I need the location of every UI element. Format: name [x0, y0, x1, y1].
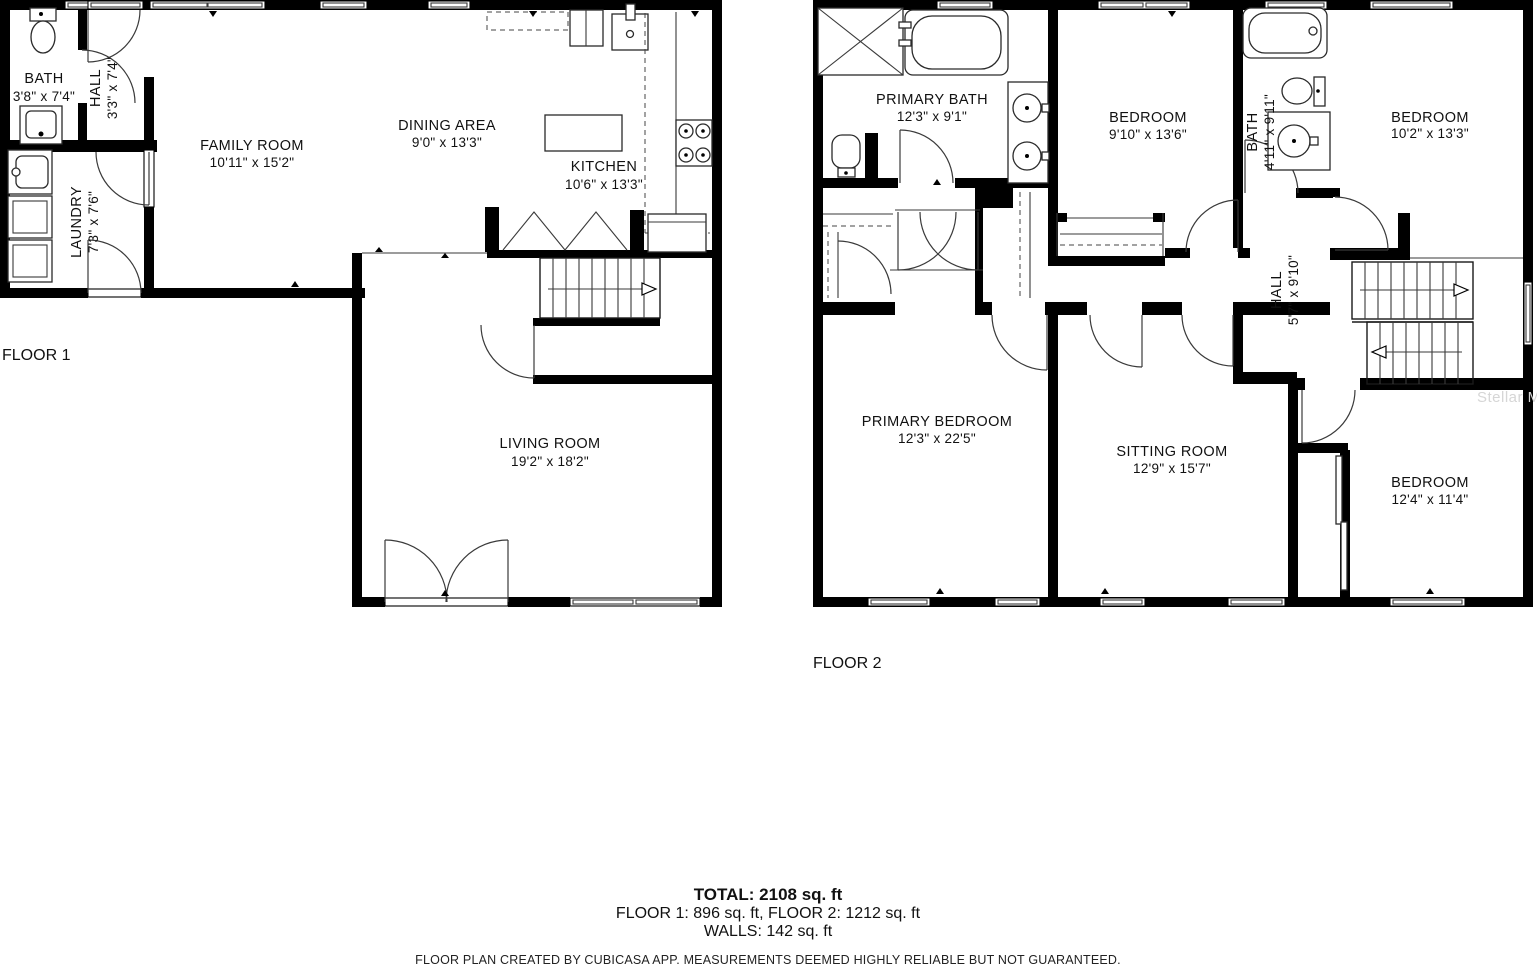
- kitchen-fixtures: [487, 4, 712, 252]
- closet-bifold-icon: [503, 212, 706, 252]
- bathroom-sink-icon: [20, 106, 62, 144]
- room-label: LIVING ROOM: [499, 436, 600, 452]
- room-dims: 10'2" x 13'3": [1391, 126, 1469, 141]
- shower-icon: [818, 8, 903, 75]
- bathtub-icon: [1243, 8, 1327, 58]
- understairs-closet-door-icon: [481, 325, 534, 378]
- room-label: HALL: [1269, 271, 1285, 309]
- kitchen-sink-icon: [612, 4, 648, 50]
- upper-cabinets-icon: [487, 12, 568, 30]
- walls-area-text: WALLS: 142 sq. ft: [704, 923, 833, 940]
- floor-plan-drawing: BATH 3'8" x 7'4" HALL 3'3" x 7'4" LAUNDR…: [0, 0, 1537, 966]
- window-icon: [1228, 598, 1285, 606]
- primary-bath-door-icon: [900, 130, 953, 183]
- primary-bedroom-door-icon: [992, 315, 1047, 370]
- room-label: BEDROOM: [1391, 110, 1469, 126]
- floor2-title: FLOOR 2: [813, 655, 882, 672]
- room-label: BATH: [24, 71, 63, 87]
- front-door-opening: [88, 1, 143, 9]
- bathroom-sink-icon: [1268, 112, 1330, 170]
- room-dims: 7'3" x 7'6": [86, 191, 101, 253]
- floor-areas-text: FLOOR 1: 896 sq. ft, FLOOR 2: 1212 sq. f…: [616, 905, 921, 922]
- bedroom-bottom-door-icon: [1302, 390, 1355, 443]
- bathtub-icon: [899, 10, 1008, 75]
- room-dims: 5'7" x 9'10": [1286, 255, 1301, 325]
- summary-block: TOTAL: 2108 sq. ft FLOOR 1: 896 sq. ft, …: [415, 885, 1121, 966]
- sitting-room-door-icon: [1090, 315, 1142, 367]
- washer-icon: [8, 196, 52, 238]
- stove-icon: [676, 120, 712, 166]
- utility-sink-icon: [8, 150, 52, 194]
- laundry-fixtures: [8, 150, 52, 282]
- walkin-closet-shelving: [823, 214, 983, 298]
- wall-markers: [209, 11, 699, 596]
- kitchen-island-icon: [545, 115, 622, 151]
- window-icon: [868, 598, 930, 606]
- room-dims: 3'8" x 7'4": [13, 89, 75, 104]
- sitting-room-door-icon: [1182, 315, 1233, 366]
- room-dims: 10'11" x 15'2": [210, 155, 295, 170]
- room-dims: 12'3" x 22'5": [898, 431, 976, 446]
- room-label: PRIMARY BATH: [876, 92, 988, 108]
- double-vanity-icon: [1008, 82, 1049, 183]
- room-dims: 4'11" x 9'11": [1262, 94, 1277, 170]
- left-closet-door-icon: [838, 241, 891, 294]
- room-dims: 3'3" x 7'4": [105, 57, 120, 119]
- room-dims: 12'3" x 9'1": [897, 109, 967, 124]
- room-label: SITTING ROOM: [1116, 444, 1227, 460]
- room-label: HALL: [88, 69, 104, 107]
- floor2-doors: [838, 130, 1388, 590]
- laundry-exterior-door-threshold: [88, 289, 141, 297]
- room-label: DINING AREA: [398, 118, 496, 134]
- window-icon: [570, 598, 700, 606]
- window-icon: [1370, 1, 1453, 9]
- window-icon: [1100, 598, 1145, 606]
- window-icon: [428, 1, 470, 9]
- room-label: BATH: [1245, 112, 1261, 151]
- toilet-icon: [832, 135, 860, 177]
- floor1-stairs: [540, 258, 660, 318]
- room-label: BEDROOM: [1109, 110, 1187, 126]
- total-area-text: TOTAL: 2108 sq. ft: [694, 885, 843, 904]
- floor1-plan: BATH 3'8" x 7'4" HALL 3'3" x 7'4" LAUNDR…: [0, 0, 722, 607]
- window-icon: [1390, 598, 1465, 606]
- floor1-title: FLOOR 1: [2, 347, 71, 364]
- bedroom-mid-closet: [1057, 213, 1163, 256]
- bedroom-right-door-icon: [1335, 197, 1388, 250]
- room-dims: 9'10" x 13'6": [1109, 127, 1187, 142]
- disclaimer-text: FLOOR PLAN CREATED BY CUBICASA APP. MEAS…: [415, 953, 1121, 966]
- toilet-icon: [30, 8, 56, 53]
- front-door-icon: [88, 10, 140, 62]
- window-icon: [995, 598, 1040, 606]
- walkin-closet-double-doors-icon: [895, 210, 980, 270]
- bedroom-mid-door-icon: [1186, 200, 1238, 252]
- window-icon: [1524, 282, 1532, 345]
- stairs-down-arrow-icon: [1372, 346, 1462, 358]
- room-dims: 9'0" x 13'3": [412, 135, 482, 150]
- room-dims: 12'9" x 15'7": [1133, 461, 1211, 476]
- watermark: Stellar M: [1477, 389, 1537, 406]
- room-label: BEDROOM: [1391, 475, 1469, 491]
- laundry-door-icon: [96, 150, 154, 207]
- window-icon: [937, 1, 993, 9]
- stairs-up-arrow-icon: [548, 283, 656, 295]
- stairs-up-arrow-icon: [1360, 284, 1468, 296]
- floor2-plan: PRIMARY BATH 12'3" x 9'1" BEDROOM 9'10" …: [813, 0, 1537, 672]
- room-label: LAUNDRY: [69, 186, 85, 258]
- toilet-icon: [1282, 77, 1325, 106]
- room-dims: 10'6" x 13'3": [565, 177, 643, 192]
- refrigerator-icon: [570, 10, 603, 46]
- room-label: FAMILY ROOM: [200, 138, 304, 154]
- window-icon: [150, 1, 265, 9]
- floor-plan-page: BATH 3'8" x 7'4" HALL 3'3" x 7'4" LAUNDR…: [0, 0, 1537, 966]
- floor2-stairs: [1352, 258, 1523, 384]
- linen-closet-shelving: [1020, 192, 1030, 298]
- dryer-icon: [8, 240, 52, 282]
- window-icon: [320, 1, 367, 9]
- room-dims: 12'4" x 11'4": [1392, 492, 1469, 507]
- window-icon: [1098, 1, 1190, 9]
- room-dims: 19'2" x 18'2": [511, 454, 589, 469]
- room-label: KITCHEN: [571, 159, 637, 175]
- room-label: PRIMARY BEDROOM: [862, 414, 1013, 430]
